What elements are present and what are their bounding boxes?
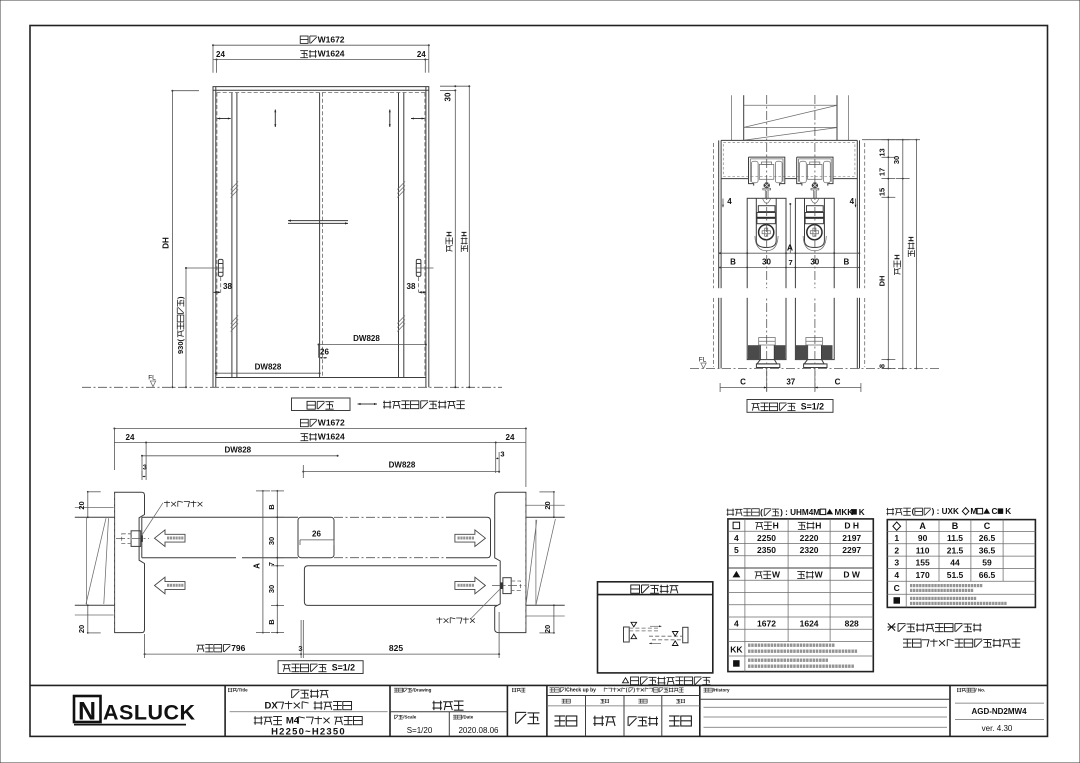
svg-text:KK: KK xyxy=(730,645,743,655)
svg-text:DH: DH xyxy=(162,237,171,249)
svg-text:170: 170 xyxy=(916,570,930,580)
svg-text:/ No.: / No. xyxy=(975,688,985,693)
svg-text:155: 155 xyxy=(916,558,930,568)
svg-text:DW828: DW828 xyxy=(224,446,251,455)
svg-text:30: 30 xyxy=(762,257,771,266)
svg-text:110: 110 xyxy=(916,545,930,555)
svg-text:/History: /History xyxy=(713,688,730,693)
svg-text:21.5: 21.5 xyxy=(947,545,964,555)
svg-text:B: B xyxy=(952,521,959,531)
svg-text:DX: DX xyxy=(265,701,279,712)
svg-text:4: 4 xyxy=(850,197,855,206)
svg-text:30: 30 xyxy=(892,156,901,164)
svg-text:26.5: 26.5 xyxy=(979,533,996,543)
svg-text:796: 796 xyxy=(231,643,245,653)
svg-text:3: 3 xyxy=(500,450,504,459)
svg-text:3: 3 xyxy=(894,558,899,568)
svg-text:/Check up by: /Check up by xyxy=(565,688,596,694)
svg-text:66.5: 66.5 xyxy=(979,570,996,580)
svg-text:20: 20 xyxy=(543,501,552,509)
svg-text:7: 7 xyxy=(269,562,276,566)
svg-text:11.5: 11.5 xyxy=(947,533,963,543)
svg-text:3: 3 xyxy=(143,463,147,472)
svg-text:S=1/2: S=1/2 xyxy=(801,402,824,412)
svg-text:H: H xyxy=(445,231,454,236)
svg-text:1: 1 xyxy=(894,533,899,543)
svg-text:S=1/2: S=1/2 xyxy=(332,663,355,673)
svg-text:W: W xyxy=(772,570,781,580)
svg-text:B: B xyxy=(267,504,276,510)
svg-text:) : UHM4M: ) : UHM4M xyxy=(780,508,820,517)
svg-text:30: 30 xyxy=(267,537,276,545)
svg-text:24: 24 xyxy=(126,433,135,442)
svg-text:2350: 2350 xyxy=(757,545,776,555)
svg-text:(: ( xyxy=(760,508,763,517)
svg-text:DH: DH xyxy=(878,276,887,287)
svg-text:/Scale: /Scale xyxy=(403,715,417,720)
svg-text:30: 30 xyxy=(267,585,276,593)
svg-text:H: H xyxy=(460,231,469,236)
svg-text:17: 17 xyxy=(878,168,887,176)
svg-text:A: A xyxy=(252,563,261,569)
svg-text:5: 5 xyxy=(734,545,739,555)
svg-text:(: ( xyxy=(626,688,628,694)
svg-text:24: 24 xyxy=(216,50,225,59)
svg-text:8: 8 xyxy=(878,364,887,368)
svg-text:H: H xyxy=(893,254,902,259)
svg-text:38: 38 xyxy=(223,282,232,291)
svg-text:A: A xyxy=(787,243,793,253)
svg-text:W1672: W1672 xyxy=(318,418,345,428)
svg-text:2020.08.06: 2020.08.06 xyxy=(458,726,499,735)
svg-text:2250: 2250 xyxy=(757,533,776,543)
svg-text:): ) xyxy=(176,296,185,299)
svg-text:B: B xyxy=(844,257,850,266)
svg-text:D W: D W xyxy=(843,570,861,580)
svg-text:W: W xyxy=(815,570,824,580)
svg-text:2320: 2320 xyxy=(800,545,819,555)
svg-text:DW828: DW828 xyxy=(353,334,380,343)
svg-text:825: 825 xyxy=(389,643,403,653)
svg-text:/Date: /Date xyxy=(462,715,474,720)
svg-text:1624: 1624 xyxy=(800,619,819,629)
svg-text:2197: 2197 xyxy=(842,533,861,543)
svg-text:30: 30 xyxy=(444,92,453,101)
svg-text:15: 15 xyxy=(878,188,887,196)
svg-text:C: C xyxy=(894,583,900,593)
svg-text:44: 44 xyxy=(950,558,960,568)
svg-text:DW828: DW828 xyxy=(389,461,416,470)
svg-text:2220: 2220 xyxy=(800,533,819,543)
svg-text:20: 20 xyxy=(543,625,552,633)
svg-text:S=1/20: S=1/20 xyxy=(407,726,433,735)
svg-text:930(: 930( xyxy=(176,338,185,354)
svg-text:MKK: MKK xyxy=(835,508,854,517)
svg-text:H: H xyxy=(907,236,916,241)
svg-text:W1624: W1624 xyxy=(318,49,345,59)
svg-text:H: H xyxy=(773,520,779,530)
svg-text:A: A xyxy=(919,521,926,531)
svg-text:C: C xyxy=(992,507,998,516)
svg-text:2297: 2297 xyxy=(842,545,861,555)
svg-text:C: C xyxy=(984,521,991,531)
svg-text:W1672: W1672 xyxy=(318,34,345,44)
svg-text:H2250~H2350: H2250~H2350 xyxy=(271,727,346,738)
svg-text:AGD-ND2MW4: AGD-ND2MW4 xyxy=(971,707,1027,716)
svg-text:24: 24 xyxy=(417,50,426,59)
svg-text:51.5: 51.5 xyxy=(947,570,964,580)
svg-text:59: 59 xyxy=(982,558,992,568)
svg-text:C: C xyxy=(740,378,746,387)
svg-text:1672: 1672 xyxy=(757,619,776,629)
svg-text:B: B xyxy=(267,619,276,625)
svg-text:4: 4 xyxy=(734,619,739,629)
svg-text:4: 4 xyxy=(734,533,739,543)
svg-text:DW828: DW828 xyxy=(255,363,282,372)
svg-text:13: 13 xyxy=(878,148,887,156)
svg-text:20: 20 xyxy=(77,501,86,509)
svg-text:3: 3 xyxy=(298,644,302,653)
svg-text:90: 90 xyxy=(918,533,928,543)
svg-text:828: 828 xyxy=(845,619,859,629)
svg-text:24: 24 xyxy=(506,433,515,442)
svg-text:W1624: W1624 xyxy=(318,432,345,442)
svg-text:ASLUCK: ASLUCK xyxy=(103,701,196,725)
svg-text:(: ( xyxy=(912,507,915,516)
svg-text:K: K xyxy=(1005,507,1011,516)
svg-text:37: 37 xyxy=(786,378,795,387)
svg-text:30: 30 xyxy=(810,257,819,266)
svg-text:) : UXK: ) : UXK xyxy=(932,507,959,516)
svg-text:H: H xyxy=(815,520,821,530)
svg-text:FL: FL xyxy=(148,375,156,382)
svg-text:36.5: 36.5 xyxy=(979,545,996,555)
svg-text:2: 2 xyxy=(894,545,899,555)
svg-text:4: 4 xyxy=(727,197,732,206)
svg-text:N: N xyxy=(78,698,96,726)
svg-text:26: 26 xyxy=(312,530,321,539)
svg-text:26: 26 xyxy=(320,348,329,357)
svg-text:/Drawing: /Drawing xyxy=(412,688,431,693)
svg-text:4: 4 xyxy=(894,570,899,580)
svg-text:): ) xyxy=(633,688,635,694)
svg-text:38: 38 xyxy=(407,282,416,291)
svg-text:K: K xyxy=(859,508,865,517)
svg-text:7: 7 xyxy=(789,258,793,267)
svg-text:M: M xyxy=(970,507,977,516)
svg-text:/Title: /Title xyxy=(237,688,248,693)
svg-text:M4: M4 xyxy=(286,716,300,727)
svg-text:B: B xyxy=(730,257,736,266)
svg-text:ver. 4.30: ver. 4.30 xyxy=(982,724,1013,733)
svg-text:C: C xyxy=(835,378,841,387)
svg-text:D H: D H xyxy=(844,520,859,530)
svg-text:FL: FL xyxy=(699,357,707,364)
svg-text:20: 20 xyxy=(77,625,86,633)
